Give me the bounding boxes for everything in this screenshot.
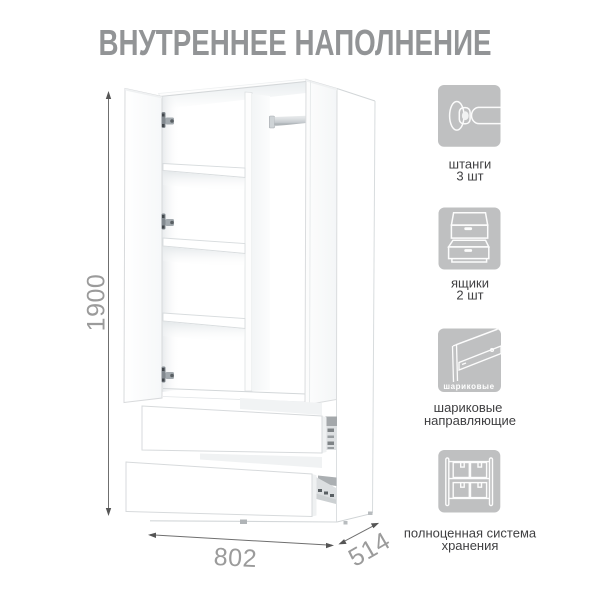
svg-text:хранения: хранения bbox=[442, 538, 499, 553]
svg-text:шариковые: шариковые bbox=[443, 382, 494, 391]
svg-text:3 шт: 3 шт bbox=[456, 168, 483, 183]
svg-text:802: 802 bbox=[213, 543, 258, 573]
svg-text:1900: 1900 bbox=[83, 274, 111, 332]
svg-text:направляющие: направляющие bbox=[424, 413, 516, 428]
svg-text:ВНУТРЕННЕЕ НАПОЛНЕНИЕ: ВНУТРЕННЕЕ НАПОЛНЕНИЕ bbox=[98, 23, 491, 63]
svg-text:2 шт: 2 шт bbox=[456, 288, 483, 303]
